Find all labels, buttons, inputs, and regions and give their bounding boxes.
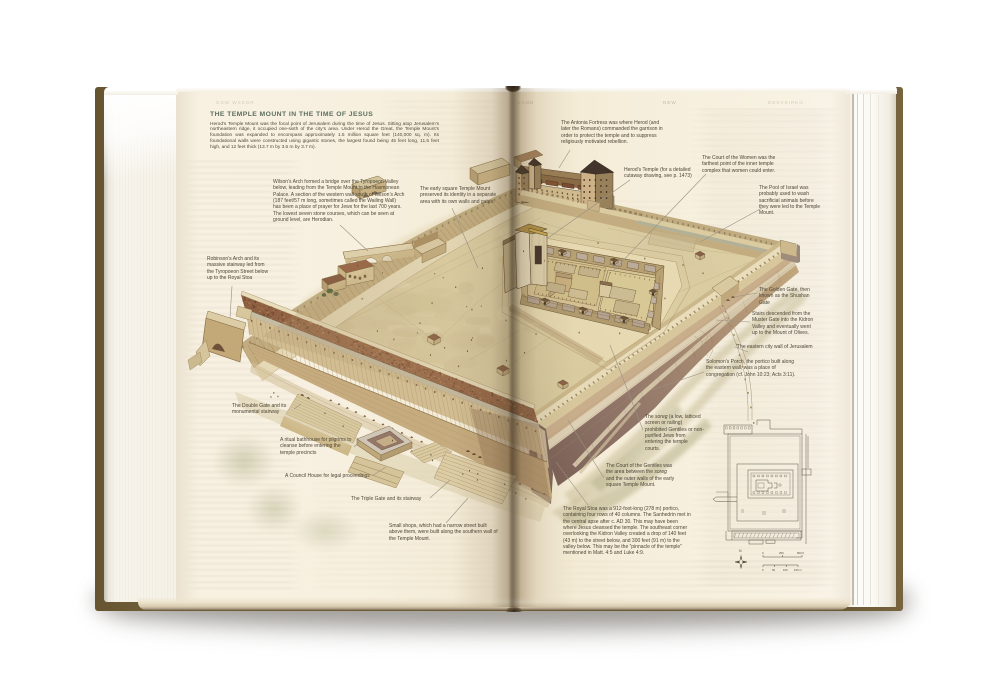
svg-text:150 m: 150 m xyxy=(794,568,802,572)
svg-text:0: 0 xyxy=(762,568,764,572)
svg-text:500 ft: 500 ft xyxy=(797,551,804,555)
svg-text:50: 50 xyxy=(772,568,776,572)
svg-text:100: 100 xyxy=(783,568,788,572)
svg-text:0: 0 xyxy=(762,551,764,555)
svg-text:N: N xyxy=(739,549,742,553)
svg-text:250: 250 xyxy=(779,551,784,555)
